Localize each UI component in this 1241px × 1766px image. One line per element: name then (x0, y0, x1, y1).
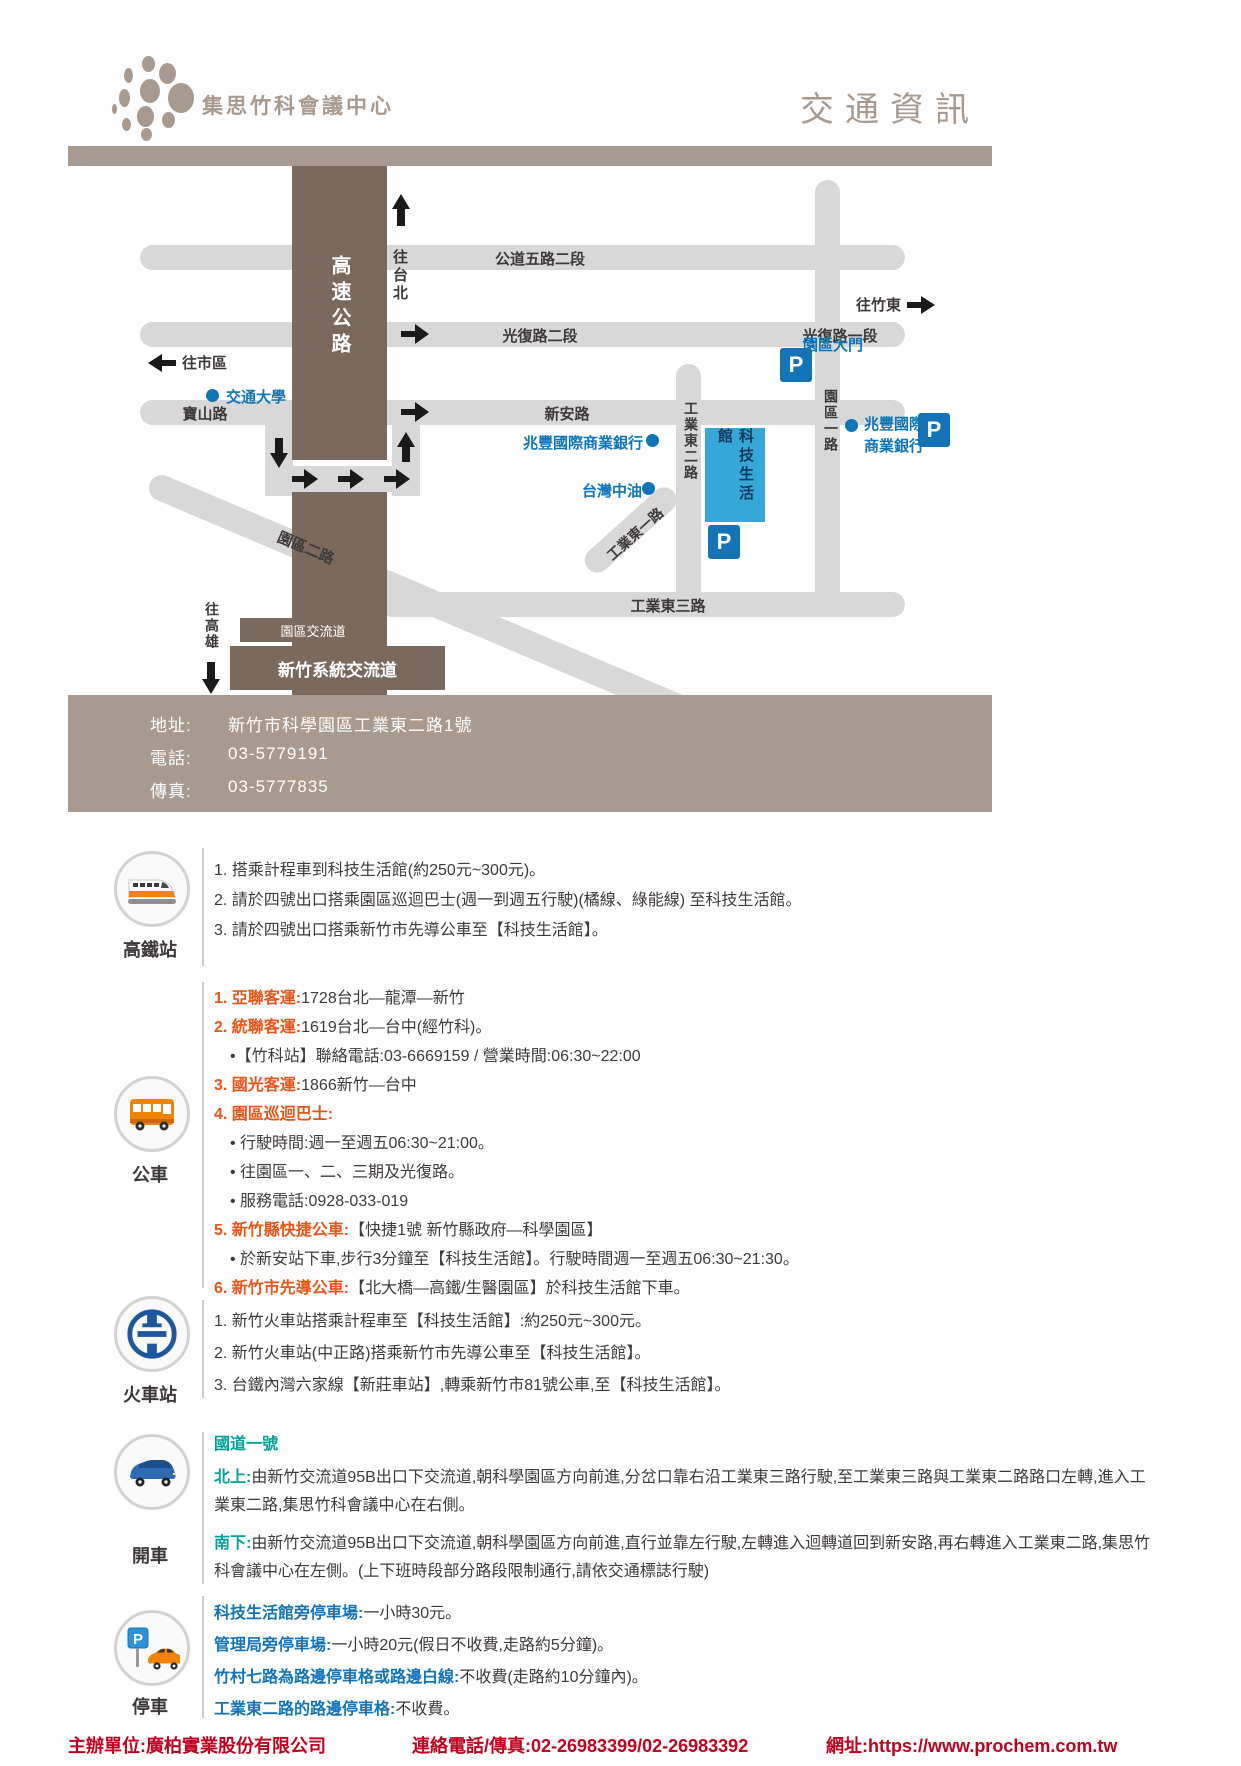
fax-value: 03-5777835 (228, 777, 329, 802)
train-content: 1. 新竹火車站搭乘計程車至【科技生活館】:約250元~300元。 2. 新竹火… (214, 1306, 1154, 1402)
arrow-up-ramp-icon (397, 432, 415, 462)
car-icon-circle (114, 1434, 190, 1510)
dir-zhudong: 往竹東 (856, 294, 935, 315)
hsr-line: 2. 請於四號出口搭乘園區巡迴巴士(週一到週五行駛)(橘線、綠能線) 至科技生活… (214, 886, 1154, 916)
nctu-label: 交通大學 (226, 386, 286, 407)
bus-section-label: 公車 (100, 1161, 200, 1187)
footer-organizer: 主辦單位:廣柏實業股份有限公司 (68, 1732, 326, 1758)
bus-icon-circle (114, 1076, 190, 1152)
arrow-up-taipei-icon (392, 194, 410, 226)
train-line: 3. 台鐵內灣六家線【新莊車站】,轉乘新竹市81號公車,至【科技生活館】。 (214, 1370, 1154, 1402)
bus-row: 4. 園區巡迴巴士: (214, 1100, 1154, 1129)
mega-bank-left-dot (646, 434, 659, 447)
car-south-directions: 南下:由新竹交流道95B出口下交流道,朝科學園區方向前進,直行並靠左行駛,左轉進… (214, 1530, 1159, 1586)
footer-phone-fax: 連絡電話/傳真:02-26983399/02-26983392 (412, 1732, 748, 1758)
train-line: 2. 新竹火車站(中正路)搭乘新竹市先導公車至【科技生活館】。 (214, 1338, 1154, 1370)
park-divider (202, 1596, 204, 1718)
arrow-right-xinan-icon (401, 402, 429, 422)
park-section-label: 停車 (100, 1693, 200, 1719)
brand-logo (112, 56, 204, 142)
brand-name: 集思竹科會議中心 (202, 90, 394, 120)
train-divider (202, 1300, 204, 1398)
train-section-label: 火車站 (100, 1381, 200, 1407)
arrow-down-ramp-icon (270, 438, 288, 468)
park-icon-circle: P (114, 1610, 190, 1686)
system-interchange-box: 新竹系統交流道 (230, 646, 445, 690)
arrow-left-icon (148, 354, 176, 372)
hsr-line: 1. 搭乘計程車到科技生活館(約250元~300元)。 (214, 856, 1154, 886)
van-icon (126, 1456, 178, 1488)
mega-bank-right-dot (845, 419, 858, 432)
contact-bar: 地址: 新竹市科學園區工業東二路1號 電話: 03-5779191 傳真: 03… (68, 695, 992, 812)
hsr-divider (202, 848, 204, 966)
page-title: 交通資訊 (800, 82, 980, 131)
bus-bullet: • 行駛時間:週一至週五06:30~21:00。 (214, 1129, 1154, 1158)
dir-zhudong-label: 往竹東 (856, 294, 901, 315)
tech-life-building-label: 科技生活館 (714, 428, 756, 522)
bus-divider (202, 982, 204, 1288)
tra-logo-icon (125, 1307, 179, 1361)
nctu-dot (206, 389, 219, 402)
arrow-right-ramp1-icon (292, 469, 318, 489)
address-value: 新竹市科學園區工業東二路1號 (228, 711, 472, 736)
road-label-yuanqu1: 園區一路 (815, 366, 841, 476)
system-interchange-label: 新竹系統交流道 (278, 656, 397, 681)
traffic-info-page: 集思竹科會議中心 交通資訊 園區交流道 新竹系統交流道 高速公路 公道五路二段 … (0, 0, 1241, 1766)
arrow-right-icon (907, 296, 935, 314)
park-row: 工業東二路的路邊停車格:不收費。 (214, 1694, 1154, 1726)
car-section-label: 開車 (100, 1542, 200, 1568)
road-label-gongye2: 工業東二路 (676, 376, 701, 506)
phone-label: 電話: (150, 744, 214, 769)
parking-sign-icon: P (124, 1626, 180, 1670)
road-label-guangfu2: 光復路二段 (440, 325, 640, 346)
top-band (68, 146, 992, 166)
train-line: 1. 新竹火車站搭乘計程車至【科技生活館】:約250元~300元。 (214, 1306, 1154, 1338)
bus-bullet: •【竹科站】聯絡電話:03-6669159 / 營業時間:06:30~22:00 (214, 1042, 1154, 1071)
address-label: 地址: (150, 711, 214, 736)
train-icon-circle (114, 1296, 190, 1372)
road-label-gongye3: 工業東三路 (588, 595, 748, 616)
park-row: 竹村七路為路邊停車格或路邊白線:不收費(走路約10分鐘內)。 (214, 1662, 1154, 1694)
mega-bank-left-label: 兆豐國際商業銀行 (523, 432, 643, 453)
hsr-icon-circle (114, 851, 190, 927)
car-north-directions: 北上:由新竹交流道95B出口下交流道,朝科學園區方向前進,分岔口靠右沿工業東三路… (214, 1464, 1159, 1520)
road-label-gongye1: 工業東一路 (587, 490, 682, 578)
bus-row: 5. 新竹縣快捷公車:【快捷1號 新竹縣政府—科學園區】 (214, 1216, 1154, 1245)
highway-label: 高速公路 (292, 232, 387, 382)
park-row: 科技生活館旁停車場:一小時30元。 (214, 1598, 1154, 1630)
arrow-right-ramp2-icon (338, 469, 364, 489)
dir-taipei-label: 往台北 (392, 230, 410, 322)
footer-website: 網址:https://www.prochem.com.tw (826, 1732, 1117, 1758)
car-divider (202, 1432, 204, 1584)
interchange-label: 園區交流道 (280, 621, 345, 640)
parking-sign-gate: P (780, 348, 812, 382)
bus-bullet: • 服務電話:0928-033-019 (214, 1187, 1154, 1216)
bus-row: 3. 國光客運:1866新竹—台中 (214, 1071, 1154, 1100)
park-row: 管理局旁停車場:一小時20元(假日不收費,走路約5分鐘)。 (214, 1630, 1154, 1662)
interchange-box: 園區交流道 (240, 618, 386, 642)
national-road-title: 國道一號 (214, 1430, 1159, 1460)
parking-sign-east: P (918, 413, 950, 447)
hsr-content: 1. 搭乘計程車到科技生活館(約250元~300元)。 2. 請於四號出口搭乘園… (214, 856, 1154, 946)
arrow-down-kaohsiung-icon (202, 662, 220, 694)
mega-bank-right-label-2: 商業銀行 (864, 435, 924, 456)
cpc-dot (642, 482, 655, 495)
hsr-section-label: 高鐵站 (100, 936, 200, 962)
phone-value: 03-5779191 (228, 744, 329, 769)
fax-label: 傳真: (150, 777, 214, 802)
bus-icon (127, 1096, 177, 1132)
gate-label: 園區大門 (803, 334, 863, 355)
hsr-train-icon (126, 872, 178, 906)
svg-text:P: P (133, 1631, 143, 1648)
cpc-label: 台灣中油 (582, 480, 642, 501)
tech-life-building: 科技生活館 (705, 428, 765, 522)
car-content: 國道一號 北上:由新竹交流道95B出口下交流道,朝科學園區方向前進,分岔口靠右沿… (214, 1430, 1159, 1586)
dir-city: 往市區 (148, 352, 227, 373)
hsr-line: 3. 請於四號出口搭乘新竹市先導公車至【科技生活館】。 (214, 916, 1154, 946)
road-label-xinan: 新安路 (517, 403, 617, 424)
parking-sign-building: P (708, 525, 740, 559)
bus-bullet: • 於新安站下車,步行3分鐘至【科技生活館】。行駛時間週一至週五06:30~21… (214, 1245, 1154, 1274)
bus-row: 2. 統聯客運:1619台北—台中(經竹科)。 (214, 1013, 1154, 1042)
dir-city-label: 往市區 (182, 352, 227, 373)
bus-row: 1. 亞聯客運:1728台北—龍潭—新竹 (214, 984, 1154, 1013)
arrow-right-ramp3-icon (384, 469, 410, 489)
bus-bullet: • 往園區一、二、三期及光復路。 (214, 1158, 1154, 1187)
road-label-gongdao5: 公道五路二段 (440, 248, 640, 269)
mega-bank-right-label-1: 兆豐國際 (864, 413, 924, 434)
bus-row: 6. 新竹市先導公車:【北大橋—高鐵/生醫園區】於科技生活館下車。 (214, 1274, 1154, 1303)
bus-content: 1. 亞聯客運:1728台北—龍潭—新竹 2. 統聯客運:1619台北—台中(經… (214, 984, 1154, 1303)
dir-kaohsiung-label: 往高雄 (202, 594, 222, 658)
location-map: 園區交流道 新竹系統交流道 高速公路 公道五路二段 光復路二段 光復路一段 寶山… (68, 166, 992, 695)
arrow-right-guangfu-icon (401, 324, 429, 344)
park-content: 科技生活館旁停車場:一小時30元。 管理局旁停車場:一小時20元(假日不收費,走… (214, 1598, 1154, 1726)
